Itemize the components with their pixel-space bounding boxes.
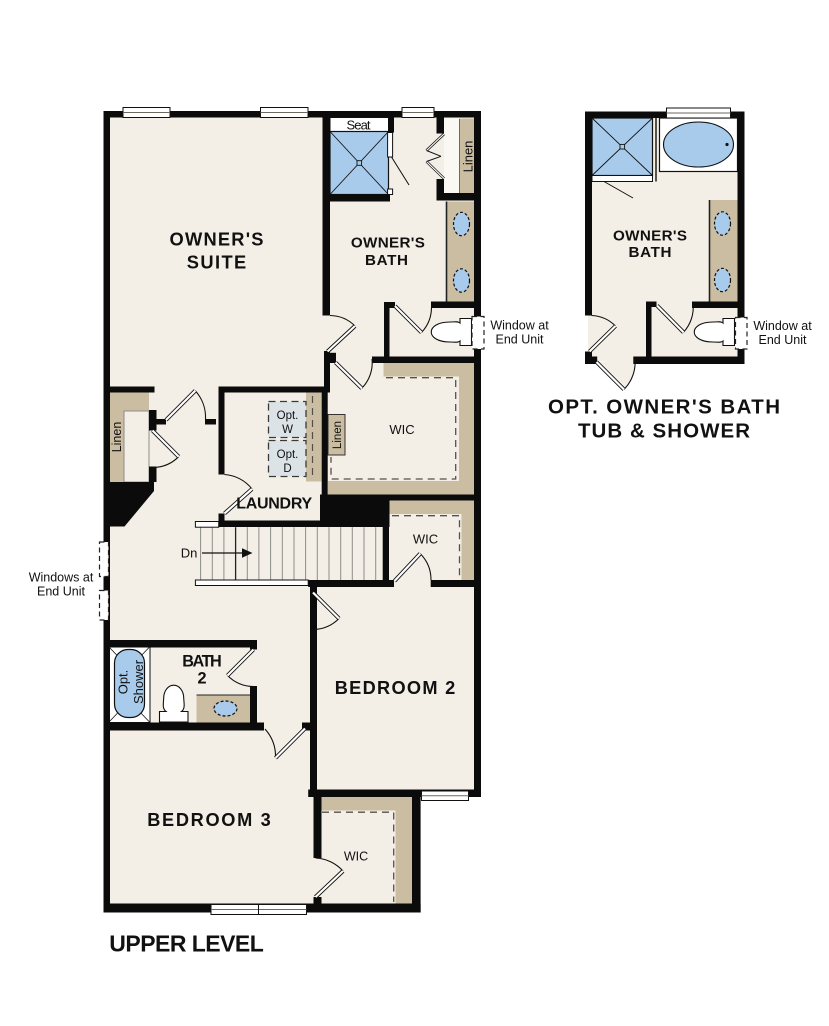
svg-text:End Unit: End Unit xyxy=(496,333,544,347)
svg-text:BEDROOM 3: BEDROOM 3 xyxy=(147,810,271,830)
svg-text:End Unit: End Unit xyxy=(37,585,85,599)
svg-text:Linen: Linen xyxy=(332,421,344,449)
svg-text:BEDROOM 2: BEDROOM 2 xyxy=(335,678,456,698)
svg-text:Opt.: Opt. xyxy=(277,410,299,422)
svg-text:Dn: Dn xyxy=(181,546,198,561)
svg-text:D: D xyxy=(283,463,291,475)
svg-text:Opt.: Opt. xyxy=(277,449,299,461)
svg-text:OWNER'S: OWNER'S xyxy=(613,228,687,245)
svg-text:Linen: Linen xyxy=(461,141,476,173)
svg-text:WIC: WIC xyxy=(344,850,368,864)
svg-text:2: 2 xyxy=(197,670,206,688)
svg-text:OPT. OWNER'S BATH: OPT. OWNER'S BATH xyxy=(548,396,780,419)
svg-text:OWNER'S: OWNER'S xyxy=(351,235,425,252)
svg-text:LAUNDRY: LAUNDRY xyxy=(236,496,312,513)
svg-text:Window at: Window at xyxy=(490,319,549,333)
svg-text:Window at: Window at xyxy=(753,319,812,333)
svg-text:OWNER'S: OWNER'S xyxy=(170,228,264,249)
svg-text:SUITE: SUITE xyxy=(187,252,247,273)
svg-text:BATH: BATH xyxy=(629,244,672,261)
svg-text:WIC: WIC xyxy=(413,532,438,547)
svg-text:BATH: BATH xyxy=(365,252,408,269)
svg-text:Linen: Linen xyxy=(110,422,124,453)
svg-text:TUB & SHOWER: TUB & SHOWER xyxy=(578,420,750,443)
svg-text:W: W xyxy=(282,424,293,436)
svg-text:WIC: WIC xyxy=(389,422,414,437)
svg-text:End Unit: End Unit xyxy=(759,333,807,347)
svg-text:Windows at: Windows at xyxy=(29,571,94,585)
svg-text:BATH: BATH xyxy=(182,652,222,670)
svg-text:UPPER LEVEL: UPPER LEVEL xyxy=(109,931,263,957)
svg-text:Seat: Seat xyxy=(347,117,371,132)
